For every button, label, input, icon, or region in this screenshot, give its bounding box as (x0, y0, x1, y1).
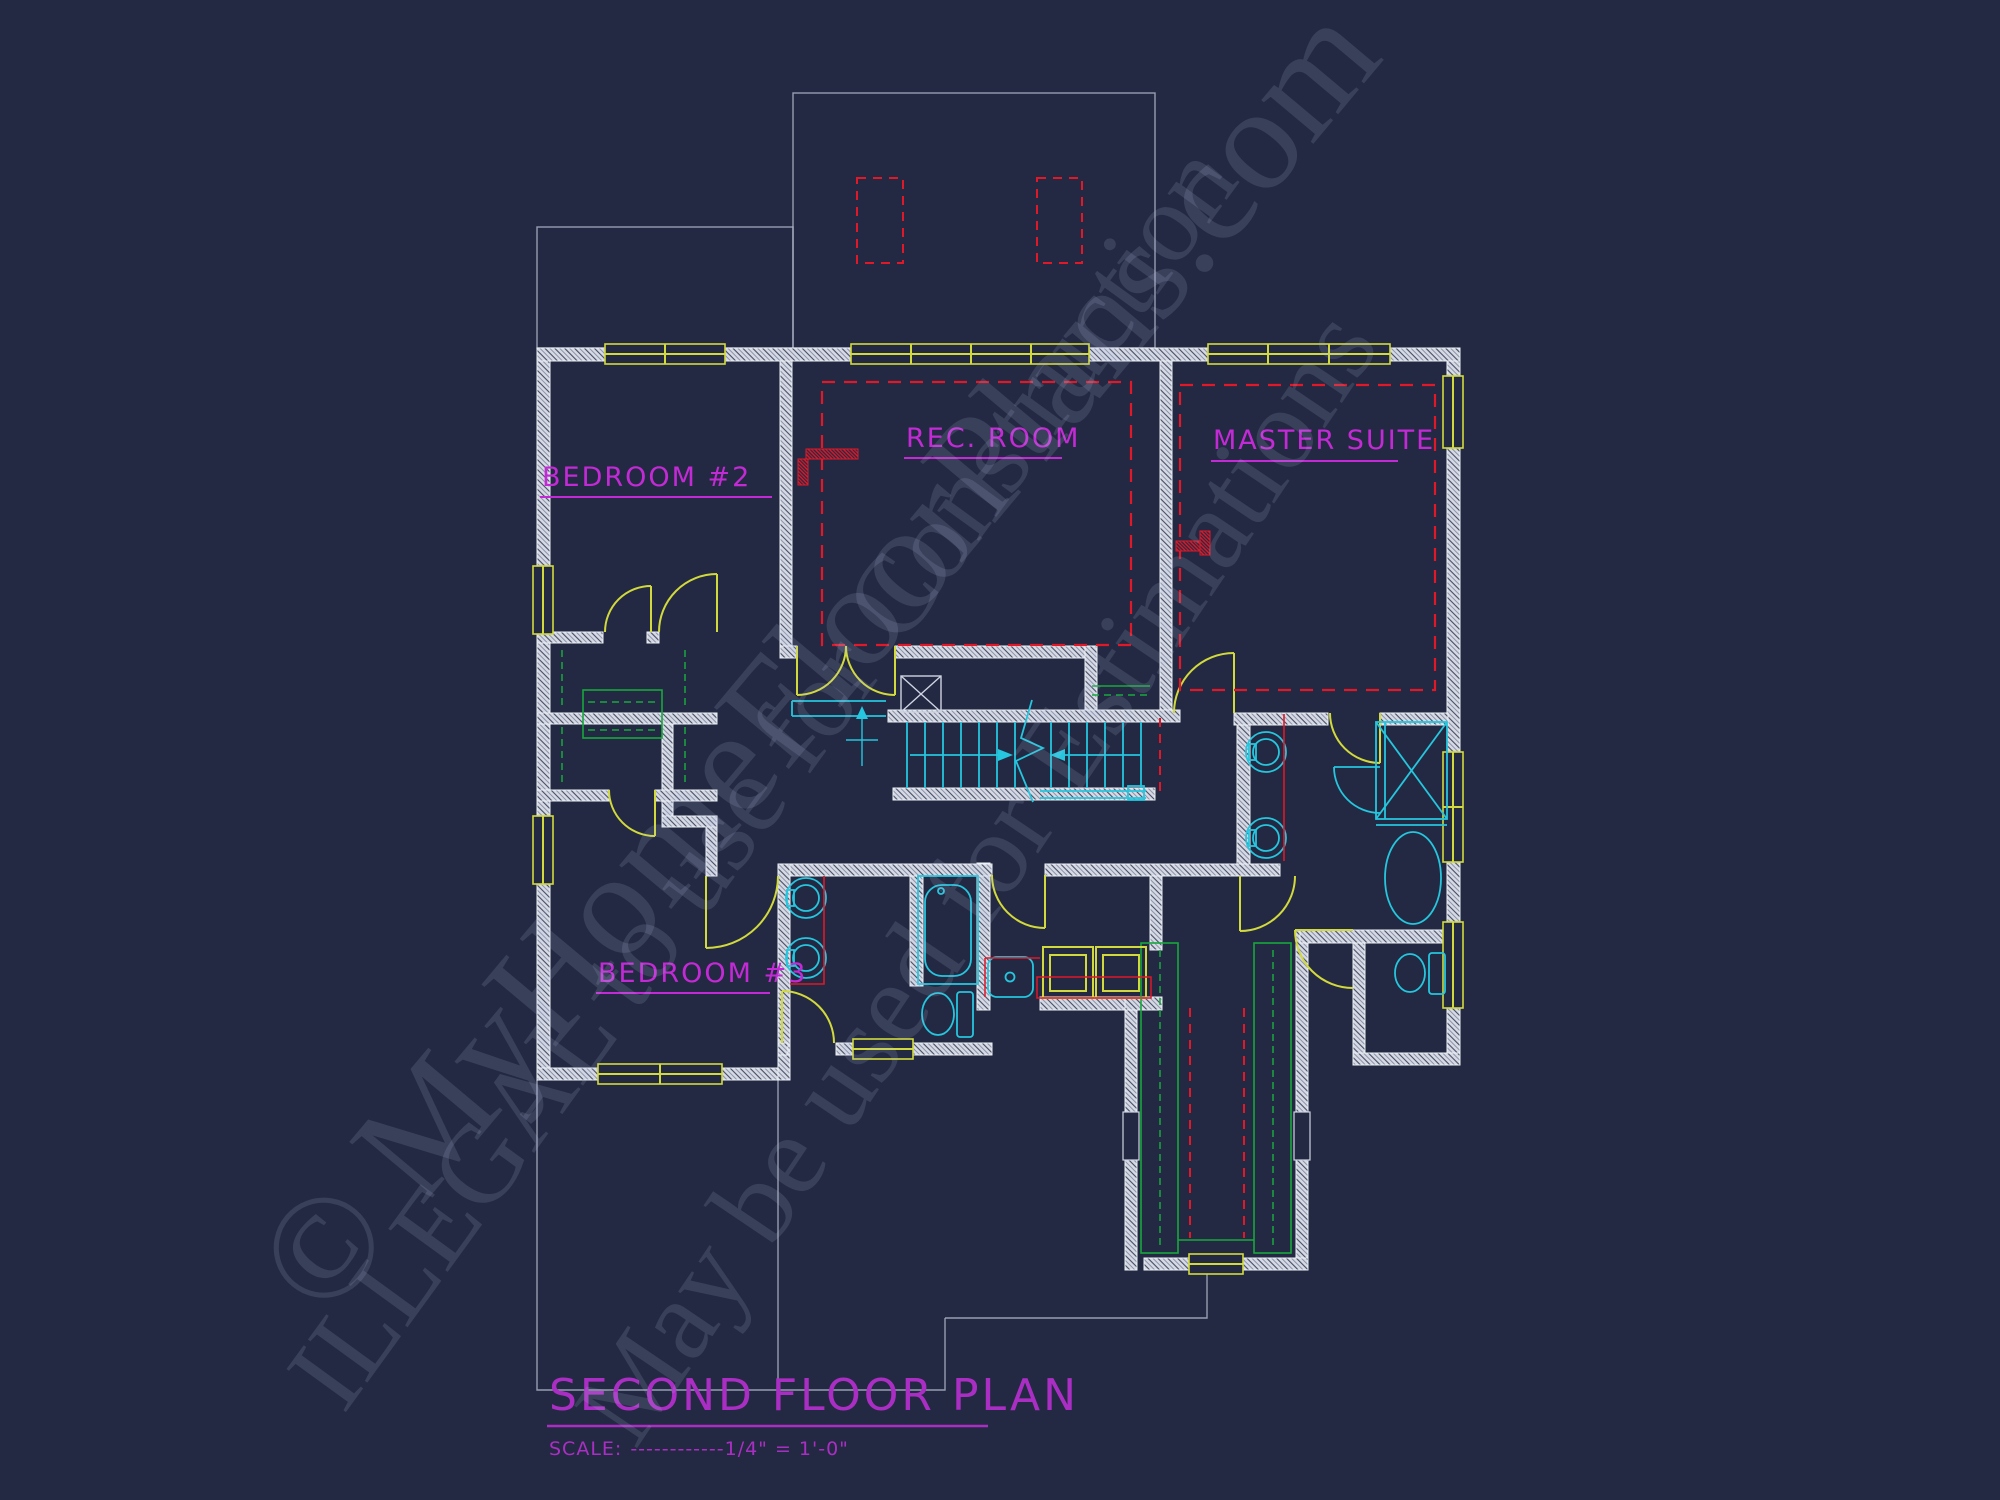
window-icon (1189, 1254, 1243, 1274)
shower-icon (1334, 722, 1447, 825)
wall-niche (1294, 1112, 1310, 1160)
door-swing-icon (605, 586, 651, 632)
vanity-sink-icon (786, 878, 826, 918)
scale-note: SCALE:------------1/4" = 1'-0" (549, 1438, 849, 1460)
window-icon (1443, 922, 1463, 1008)
door-swing-icon (659, 574, 717, 632)
chimney-chase-icon (798, 449, 858, 485)
door-swing-icon (1240, 876, 1295, 931)
wall-niche (1123, 1112, 1139, 1160)
floor-plan-canvas: BEDROOM #2 REC. ROOM MASTER SUITE BEDROO… (0, 0, 2000, 1500)
floor-plan-page: BEDROOM #2 REC. ROOM MASTER SUITE BEDROO… (0, 0, 2000, 1500)
window-icon (1443, 752, 1463, 862)
vanity-sink-icon (1246, 818, 1286, 858)
window-icon (533, 566, 553, 634)
vanity-sink-icon (1246, 732, 1286, 772)
room-label-bedroom2: BEDROOM #2 (542, 462, 751, 493)
watermark-layer: © MyHomeFloorPlans.com ILLEGAL to use fo… (224, 0, 1410, 1465)
door-swing-icon (1330, 713, 1380, 763)
window-icon (605, 344, 725, 364)
garden-tub-icon (1385, 832, 1441, 924)
window-icon (1443, 376, 1463, 448)
toilet-icon (1395, 953, 1445, 994)
washer-dryer-icon (1043, 947, 1146, 998)
chimney-chase-icon (857, 178, 903, 263)
